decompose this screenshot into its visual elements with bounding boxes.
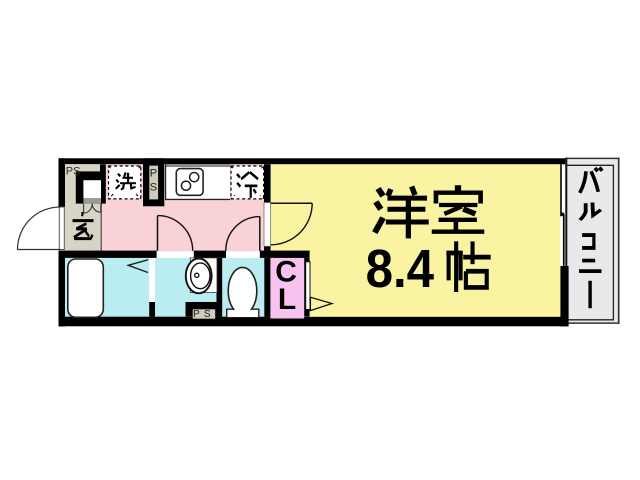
svg-text:8.4: 8.4 [366, 239, 435, 299]
svg-text:P: P [150, 168, 157, 180]
svg-text:PS: PS [66, 166, 81, 178]
svg-text:L: L [278, 283, 296, 316]
svg-text:S: S [150, 182, 157, 194]
